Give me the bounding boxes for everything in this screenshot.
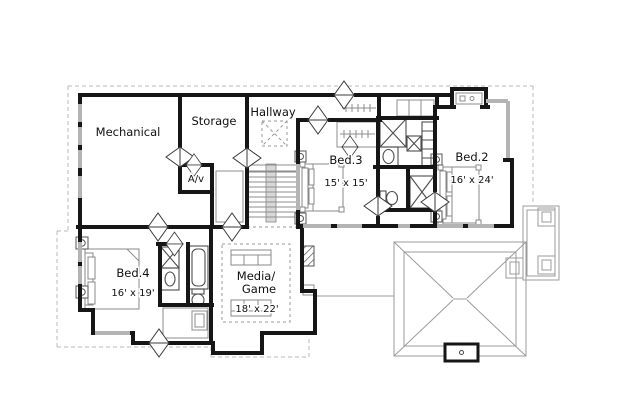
bathtub-fixture (189, 246, 208, 289)
laundry-counter (397, 100, 434, 116)
sofa-top (231, 250, 271, 265)
room-label-bed3: Bed.3 (329, 153, 362, 167)
floor-plan-drawing: Mechanical Storage Hallway A/v Bed.3 15'… (0, 0, 620, 415)
sink-fixture (165, 272, 175, 286)
room-label-bed4: Bed.4 (116, 266, 149, 280)
door-swing-icon (334, 81, 354, 109)
room-label-av: A/v (188, 174, 204, 185)
room-size-bed4: 16' x 19' (111, 288, 154, 299)
room-label-media-line2: Game (242, 282, 276, 296)
attic-access-symbol (262, 121, 287, 146)
understair-closet (216, 171, 243, 222)
room-label-bed2: Bed.2 (455, 150, 488, 164)
bath-bed4 (161, 246, 208, 338)
hip-roof-plan (316, 242, 526, 356)
staircase (247, 164, 298, 227)
bed2-furniture (438, 165, 481, 225)
room-label-media-line1: Media/ (237, 269, 276, 283)
room-size-bed3: 15' x 15' (324, 178, 367, 189)
vanity-fixture (161, 268, 179, 290)
floor-plan-page: Mechanical Storage Hallway A/v Bed.3 15'… (0, 0, 620, 415)
door-swing-icon (222, 213, 242, 241)
door-swing-icon (308, 106, 328, 134)
room-label-mechanical: Mechanical (96, 125, 161, 139)
door-swing-icon (364, 196, 392, 216)
door-swing-icon (166, 232, 183, 256)
room-label-hallway: Hallway (250, 105, 296, 119)
bed4-closet (163, 308, 208, 338)
room-size-bed2: 16' x 24' (450, 175, 493, 186)
room-size-media: 18' x 22' (235, 304, 278, 315)
sink-fixture (383, 150, 394, 164)
door-swing-icon (149, 329, 169, 357)
media-cabinet (303, 246, 314, 266)
chimney (445, 344, 478, 361)
door-swing-icon (148, 213, 168, 241)
room-label-storage: Storage (192, 114, 237, 128)
